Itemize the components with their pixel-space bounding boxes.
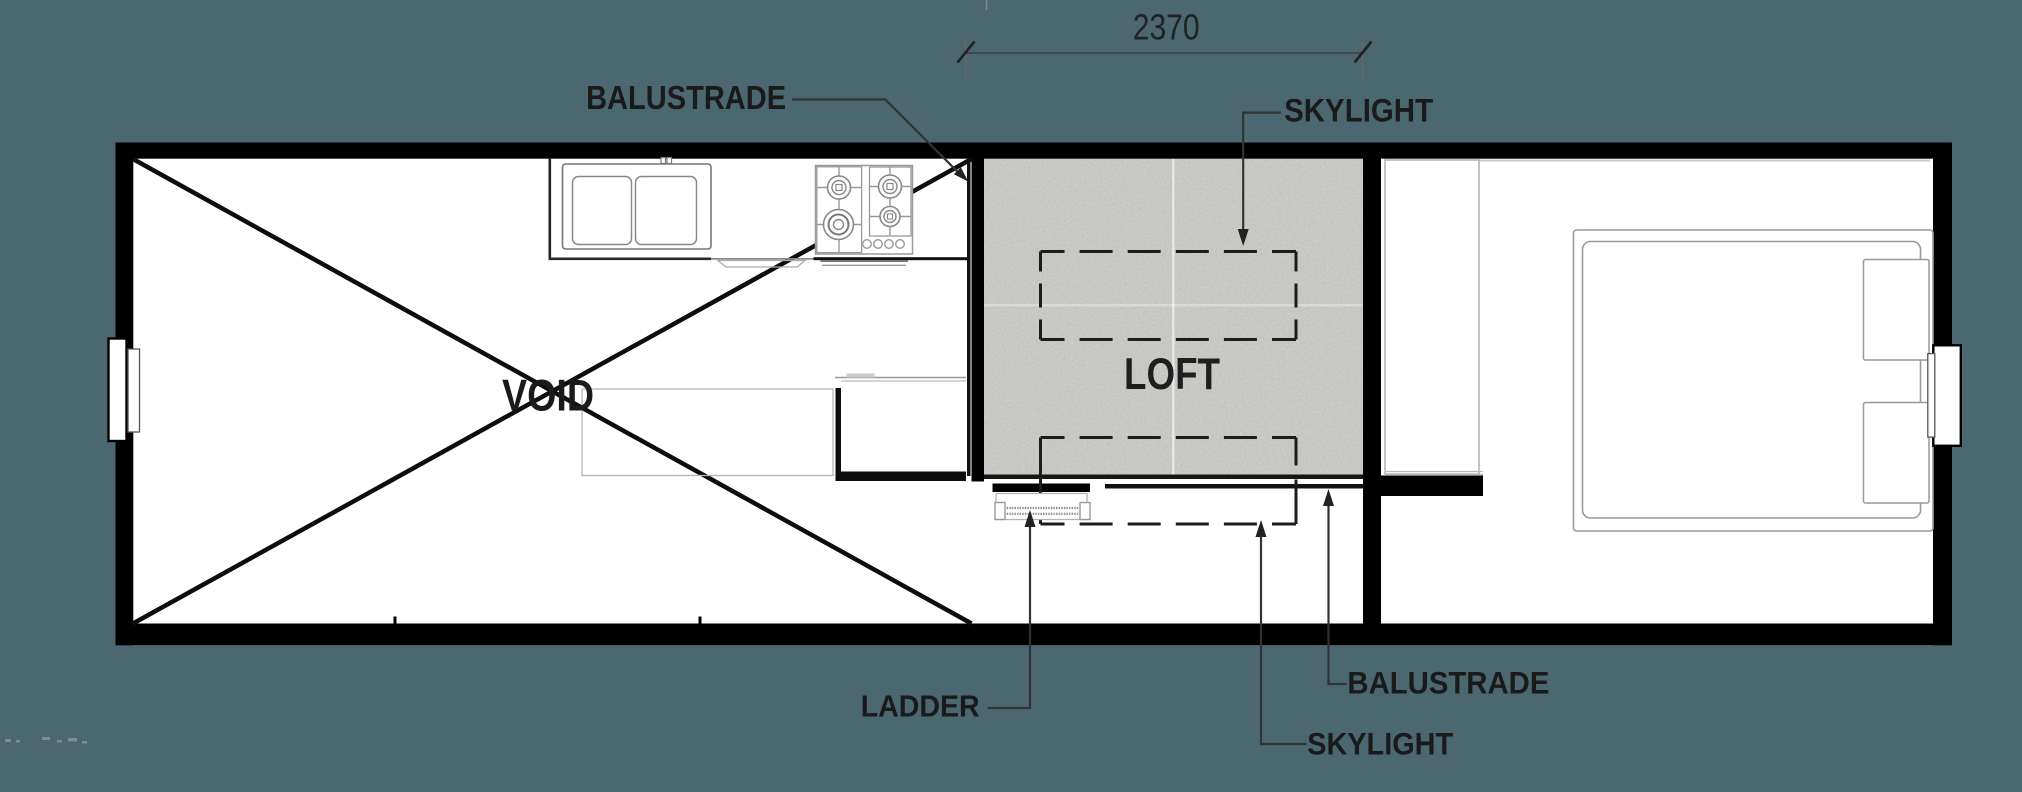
svg-text:LOFT: LOFT — [1124, 350, 1220, 399]
svg-text:SKYLIGHT: SKYLIGHT — [1284, 93, 1433, 129]
svg-text:2370: 2370 — [1133, 7, 1200, 48]
svg-text:VOID: VOID — [502, 372, 594, 421]
svg-text:BALUSTRADE: BALUSTRADE — [1347, 666, 1549, 701]
svg-text:SKYLIGHT: SKYLIGHT — [1307, 727, 1453, 762]
svg-text:BALUSTRADE: BALUSTRADE — [586, 80, 786, 117]
svg-text:LADDER: LADDER — [861, 689, 980, 724]
